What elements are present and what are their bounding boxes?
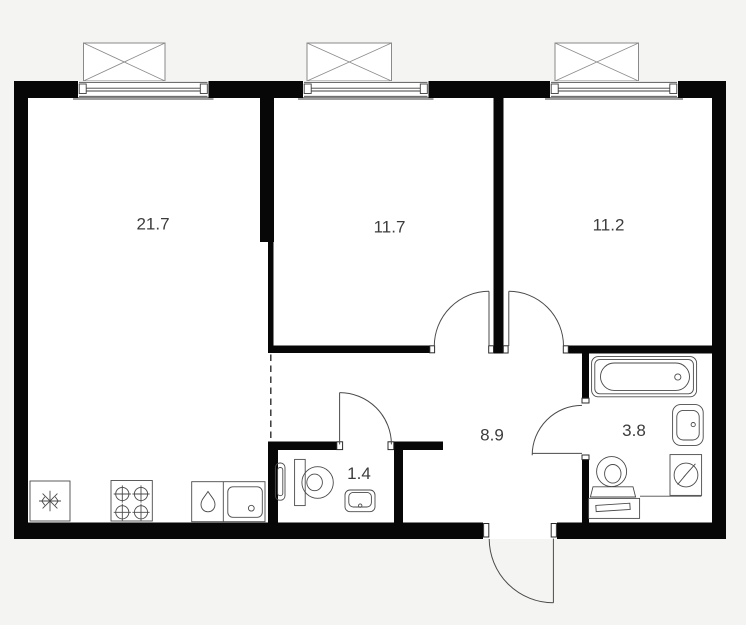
fridge-icon: [30, 481, 70, 521]
wall-wc-right: [394, 442, 403, 523]
floor-plan-canvas: 21.7 11.7 11.2 8.9 3.8 1.4: [0, 0, 746, 625]
floor-plan: 21.7 11.7 11.2 8.9 3.8 1.4: [0, 0, 746, 625]
room-area-label-bathroom: 3.8: [622, 421, 646, 440]
window-casement-box-2: [307, 43, 392, 81]
door-jamb: [484, 524, 489, 538]
room-area-label-hallway: 8.9: [480, 426, 504, 445]
kitchen-sink-icon: [192, 482, 265, 522]
wall-wc-top-left: [268, 442, 337, 451]
entrance-opening: [483, 523, 557, 540]
door-jamb: [503, 346, 508, 353]
stove-icon: [111, 481, 152, 522]
wall-living-bedroom1-thick: [260, 98, 274, 242]
window-1: [73, 81, 214, 99]
room-area-label-bedroom-2: 11.2: [593, 216, 625, 235]
wall-bathroom-left-upper: [582, 354, 589, 401]
door-jamb: [430, 346, 435, 353]
kitchen-fixtures: [30, 481, 265, 522]
window-casement-box-3: [555, 43, 639, 81]
window-casement-box-1: [84, 43, 166, 81]
wall-bedroom1-bedroom2: [494, 98, 504, 354]
wall-living-bedroom1-thin: [268, 242, 274, 346]
door-jamb: [563, 346, 568, 353]
wall-bathroom-left-lower: [582, 458, 589, 523]
wall-bedroom1-bottom: [268, 346, 435, 354]
wall-wc-left: [268, 442, 278, 523]
window-3: [545, 81, 683, 99]
window-2: [298, 81, 434, 99]
door-jamb: [582, 398, 589, 403]
wall-bedroom2-bathroom: [563, 346, 712, 354]
room-area-label-living-kitchen: 21.7: [136, 215, 169, 234]
interior-floor: [28, 98, 712, 523]
room-area-label-bedroom-1: 11.7: [374, 218, 406, 237]
door-jamb: [551, 524, 556, 538]
door-jamb: [489, 346, 494, 353]
room-area-label-wc: 1.4: [347, 464, 371, 483]
door-jamb: [582, 455, 589, 460]
